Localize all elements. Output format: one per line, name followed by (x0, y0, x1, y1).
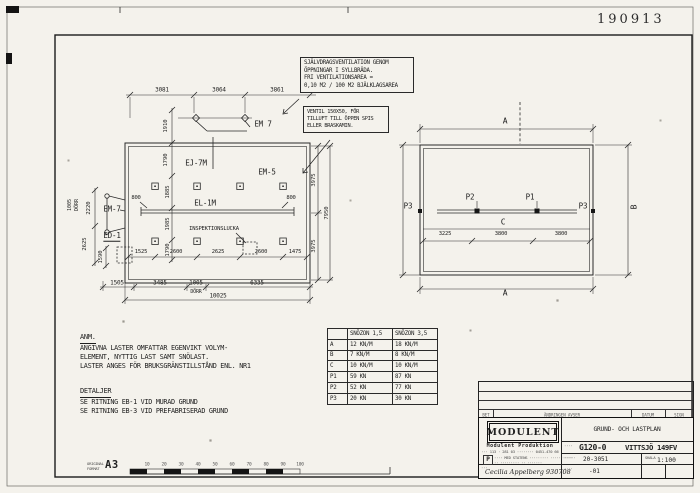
note-line: SJÄLVDRAGSVENTILATION GENOM (304, 60, 410, 68)
dim-total-label: 10025 (209, 293, 226, 300)
dim-label: 2600 (170, 249, 182, 255)
ruler-number: 20 (161, 463, 166, 468)
note-line: ÖPPNINGAR I SYLLBRÄDA. (304, 68, 410, 76)
revision-row-divider (479, 400, 693, 401)
ruler-number: 100 (296, 463, 304, 468)
scan-noise (0, 0, 1, 1)
table-header-row: SNÖZON 1,5 SNÖZON 3,5 (328, 329, 438, 340)
ruler-number: 40 (195, 463, 200, 468)
ruler-number: 60 (229, 463, 234, 468)
element-label-em7: EM-7 (103, 205, 120, 214)
title-block-divider (561, 453, 693, 454)
type-code: G120-0 (579, 443, 606, 452)
revision-table: BET ÄNDRINGEN AVSER DATUM SIGN (478, 381, 694, 419)
column-header: SNÖZON 3,5 (393, 329, 438, 340)
cell-value: 18 KN/M (393, 339, 438, 350)
dim-label: 1885 (165, 185, 171, 198)
row-label: P2 (328, 382, 348, 393)
dim-label: 3800 (495, 231, 507, 237)
vent-valve-note-box: VENTIL 150X50, FÖR TILLUFT TILL ÖPPEN SP… (303, 106, 389, 133)
ruler-number: 10 (144, 463, 149, 468)
detaljer-line: SE RITNING EB-3 VID PREFABRISERAD GRUND (80, 407, 228, 416)
dim-label: 1790 (163, 153, 169, 166)
note-line: VENTIL 150X50, FÖR (307, 109, 385, 116)
company-address-microtext: ··· 113 · 281 03 ········ 0451-470 66 (479, 449, 561, 454)
title-block-divider (561, 464, 693, 465)
title-block: MODULENT Modulent Produktion ··· 113 · 2… (478, 417, 694, 479)
sheet-suffix-number: -01 (589, 468, 600, 475)
dim-label: 2600 (255, 249, 267, 255)
inspection-hatch-label: INSPEKTIONSLUCKA (189, 226, 239, 232)
table-row: P1 59 KN 87 KN (328, 372, 438, 383)
cell-value: 7 KN/M (348, 350, 393, 361)
door-label: DÖRR (190, 289, 201, 295)
dim-label: 3081 (155, 87, 169, 94)
column-header: SNÖZON 1,5 (348, 329, 393, 340)
drawing-stamp-number: 190913 (597, 12, 665, 27)
dim-label: 1910 (163, 119, 169, 132)
drawing-title: GRUND- OCH LASTPLAN (561, 426, 693, 433)
ventilation-note-box: SJÄLVDRAGSVENTILATION GENOM ÖPPNINGAR I … (300, 57, 414, 93)
table-row: C 10 KN/M 10 KN/M (328, 361, 438, 372)
anm-line: ELEMENT, NYTTIG LAST SAMT SNÖLAST. (80, 353, 251, 362)
table-row: P3 20 KN 30 KN (328, 393, 438, 404)
dim-label: 3800 (555, 231, 567, 237)
dim-label: 1985 (165, 217, 171, 230)
dim-label: 3975 (311, 239, 317, 252)
cell-value: 52 KN (348, 382, 393, 393)
detaljer-heading: DETALJER (80, 387, 111, 398)
table-corner-cell (328, 329, 348, 340)
ruler-number: 70 (246, 463, 251, 468)
revision-row-divider (479, 409, 693, 410)
point-load-p1-label: P1 (526, 193, 535, 202)
dim-label: 3975 (311, 173, 317, 186)
load-line-a-label: A (503, 289, 508, 298)
type-approval-p-mark: P (483, 455, 493, 465)
cell-value: 59 KN (348, 372, 393, 383)
cell-value: 77 KN (393, 382, 438, 393)
row-label: A (328, 339, 348, 350)
ruler-number: 80 (263, 463, 268, 468)
drawing-sheet: 190913 SJÄLVDRAGSVENTILATION GENOM ÖPPNI… (0, 0, 700, 493)
dim-label: 3064 (212, 87, 226, 94)
note-line: 0,10 M2 / 100 M2 BJÄLKLAGSAREA (304, 83, 410, 91)
object-name: VITTSJÖ 149FV (625, 443, 677, 452)
cell-value: 30 KN (393, 393, 438, 404)
dim-label: 1005 (189, 280, 203, 287)
table-row: P2 52 KN 77 KN (328, 382, 438, 393)
point-load-p3-label: P3 (404, 202, 413, 211)
table-row: B 7 KN/M 8 KN/M (328, 350, 438, 361)
row-label: P3 (328, 393, 348, 404)
element-label-el1m: EL-1M (194, 199, 216, 208)
door-label: DÖRR (74, 199, 80, 211)
detaljer-line: SE RITNING EB-1 VID MURAD GRUND (80, 398, 228, 407)
signature-handwritten: Cecilia Appelberg 930708 (485, 468, 571, 476)
title-block-divider (641, 453, 642, 478)
cell-value: 12 KN/M (348, 339, 393, 350)
dim-label: 1475 (289, 249, 301, 255)
dim-label: 6335 (250, 280, 264, 287)
cell-value: 10 KN/M (348, 361, 393, 372)
note-line: TILLUFT TILL ÖPPEN SPIS (307, 116, 385, 123)
ruler-number: 90 (280, 463, 285, 468)
load-line-c-label: C (501, 218, 506, 227)
format-label-line2: FORMAT (87, 466, 100, 471)
element-label-em7-top: EM 7 (254, 120, 271, 129)
dim-label: 2625 (82, 237, 88, 250)
element-label-em5: EM-5 (258, 168, 275, 177)
anm-line: LASTER ANGES FÖR BRUKSGRÄNSTILLSTÅND ENL… (80, 362, 251, 371)
dim-total-label: 7950 (324, 206, 330, 219)
element-label-ed1: ED-1 (103, 231, 120, 242)
anm-heading: ANM. (80, 333, 96, 344)
scale-field-label: SKALA (645, 455, 655, 460)
offset-dim-label: 800 (131, 195, 140, 201)
table-row: A 12 KN/M 18 KN/M (328, 339, 438, 350)
element-label-ej7m: EJ-7M (185, 159, 207, 168)
row-label: C (328, 361, 348, 372)
field-label-microtext: ···· (564, 443, 572, 448)
note-line: FRI VENTILATIONSAREA = (304, 75, 410, 83)
cell-value: 10 KN/M (393, 361, 438, 372)
title-block-divider (665, 464, 666, 478)
revision-row-divider (479, 391, 693, 392)
company-logo: MODULENT (487, 421, 559, 443)
dim-label: 1505 (110, 280, 124, 287)
snow-load-table: SNÖZON 1,5 SNÖZON 3,5 A 12 KN/M 18 KN/M … (327, 328, 438, 405)
dim-label: 2220 (86, 201, 92, 214)
load-line-a-label: A (503, 117, 508, 126)
dim-label: 3861 (270, 87, 284, 94)
ruler-number: 30 (178, 463, 183, 468)
ruler-number: 50 (212, 463, 217, 468)
field-label-microtext: ···· (564, 455, 572, 460)
type-approval-microtext: ·· ········· ·· ······· (494, 460, 542, 465)
dim-label: 2625 (212, 249, 224, 255)
row-label: B (328, 350, 348, 361)
point-load-p2-label: P2 (466, 193, 475, 202)
anm-line: ANGIVNA LASTER OMFATTAR EGENVIKT VOLYM- (80, 344, 251, 353)
detaljer-note-block: DETALJER SE RITNING EB-1 VID MURAD GRUND… (80, 387, 228, 416)
cell-value: 87 KN (393, 372, 438, 383)
field-label-microtext: ···· (564, 466, 572, 471)
cell-value: 20 KN (348, 393, 393, 404)
row-label: P1 (328, 372, 348, 383)
dim-label: 1525 (135, 249, 147, 255)
dim-label: 1590 (98, 250, 104, 263)
load-line-b-label: B (630, 205, 639, 210)
point-load-p3-label: P3 (579, 202, 588, 211)
offset-dim-label: 800 (286, 195, 295, 201)
dim-label: 3225 (439, 231, 451, 237)
dim-label: 3485 (153, 280, 167, 287)
cell-value: 8 KN/M (393, 350, 438, 361)
door-dim-label: 1005 (67, 199, 73, 211)
note-line: ELLER BRASKAMIN. (307, 123, 385, 130)
project-number: 20-3051 (583, 456, 608, 463)
format-value: A3 (105, 459, 119, 471)
scale-value: 1:100 (657, 457, 676, 464)
anm-note-block: ANM. ANGIVNA LASTER OMFATTAR EGENVIKT VO… (80, 333, 251, 371)
